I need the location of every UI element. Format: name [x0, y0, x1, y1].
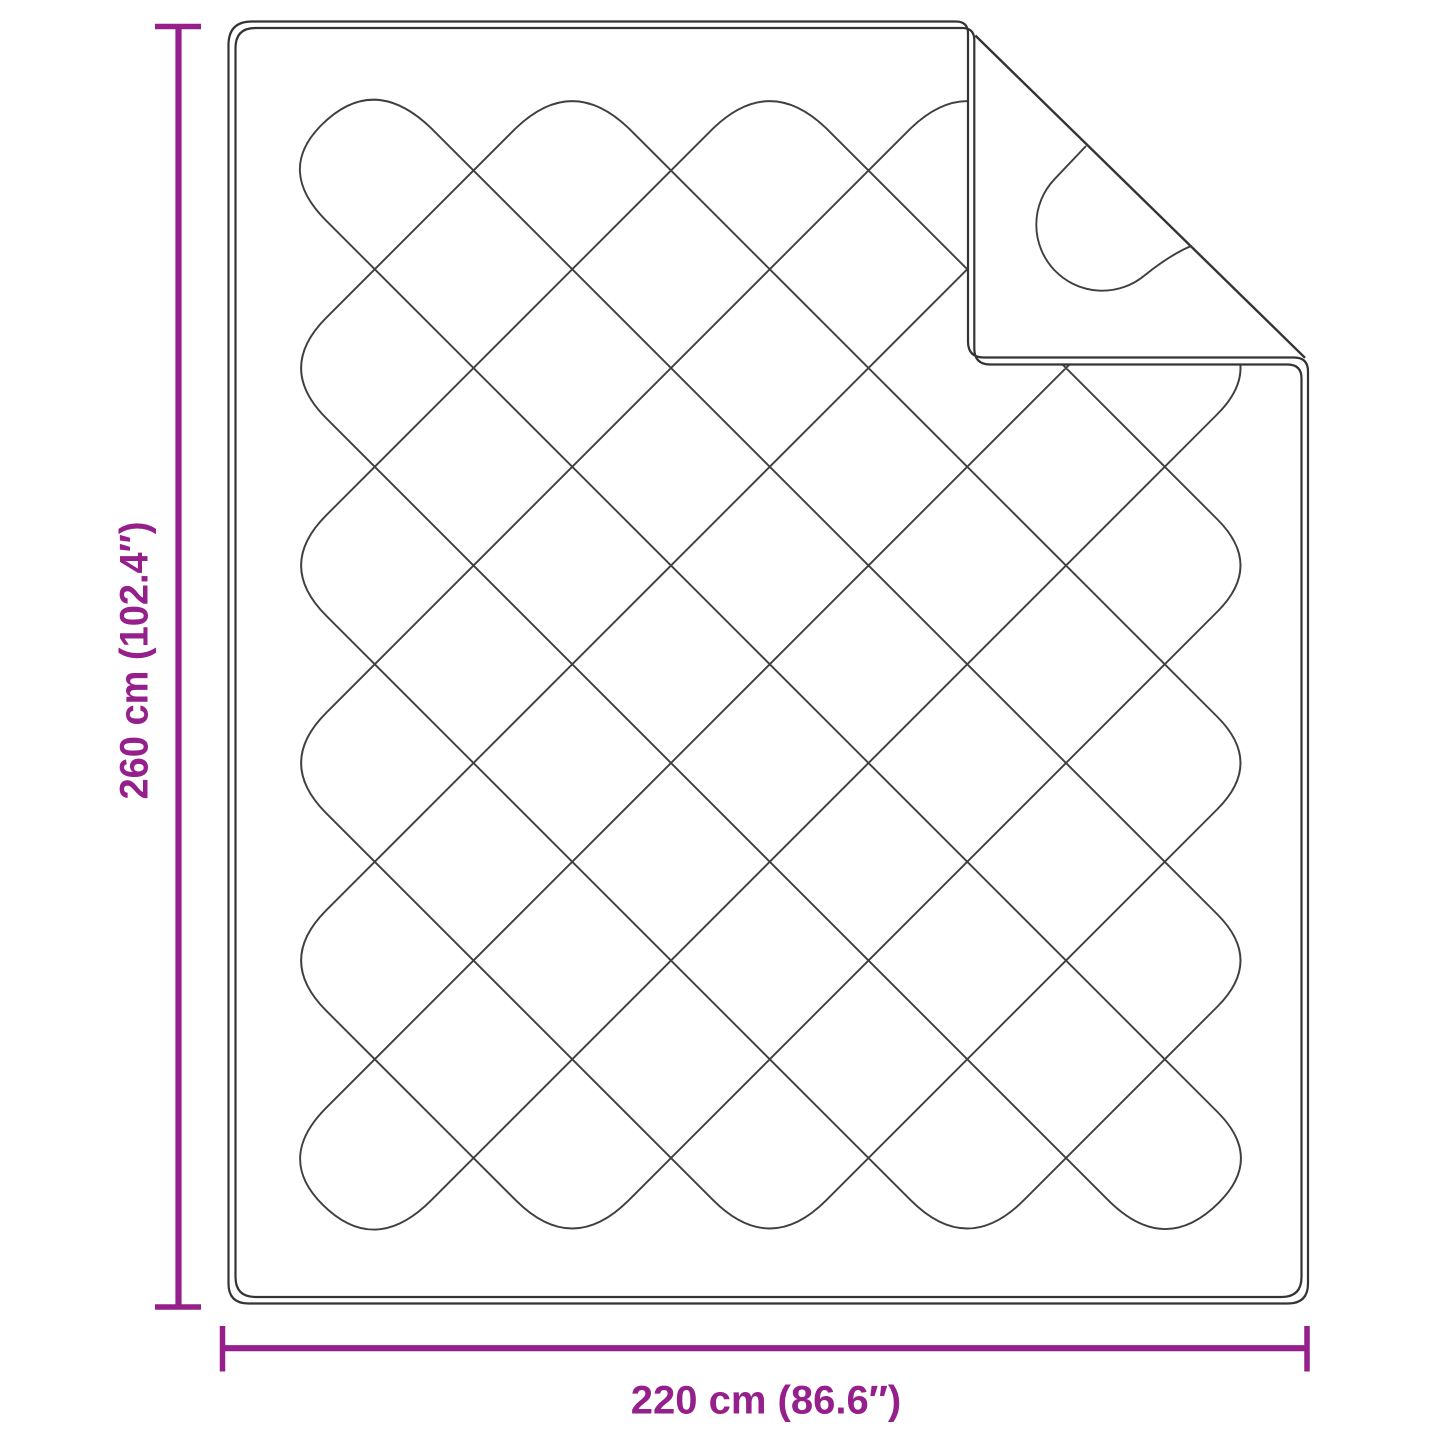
- svg-text:260 cm (102.4″): 260 cm (102.4″): [113, 522, 157, 800]
- svg-text:220 cm (86.6″): 220 cm (86.6″): [631, 1379, 901, 1423]
